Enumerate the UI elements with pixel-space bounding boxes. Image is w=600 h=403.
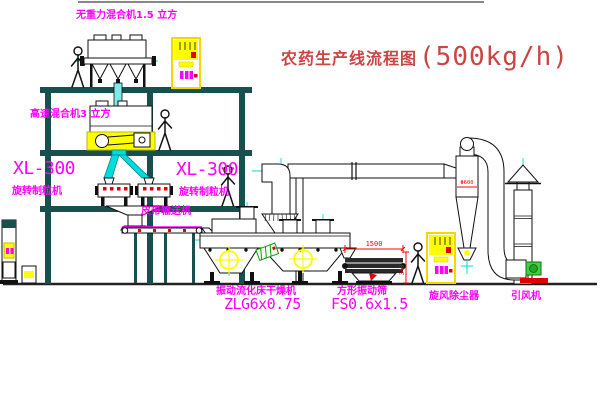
dim-340: 340	[399, 252, 409, 283]
gravity-free-mixer	[80, 35, 156, 108]
control-cabinet-2	[427, 233, 455, 283]
label-screen-model: FS0.6x1.5	[331, 297, 408, 312]
label-belt-conveyor: 皮带输送机	[141, 207, 191, 217]
dim-600-text: Φ600	[460, 180, 473, 186]
label-granulator-right-model: XL-300	[176, 161, 238, 179]
label-gravity-mixer: 无重力混合机1.5 立方	[76, 11, 177, 21]
dim-340-text: 340	[399, 264, 406, 275]
dim-1500-text: 1500	[366, 240, 383, 248]
label-granulator-right-name: 旋转制粒机	[179, 188, 229, 198]
title-capacity: (500kg/h)	[419, 42, 569, 72]
person-figure-2	[159, 110, 172, 150]
label-dryer-model: ZLG6x0.75	[224, 297, 301, 312]
title-chinese: 农药生产线流程图	[281, 45, 417, 69]
granulator-right-machine	[135, 178, 173, 206]
granulator-left-machine	[95, 178, 133, 206]
flow-diagram-canvas: 1500 340 Φ600	[0, 0, 600, 403]
control-cabinet-1	[172, 38, 200, 88]
label-high-speed-mixer: 高速混合机3 立方	[30, 110, 110, 120]
left-edge-elevator	[0, 220, 36, 284]
label-fan: 引风机	[511, 292, 541, 302]
vibrating-screen	[342, 258, 406, 284]
person-figure-4	[412, 243, 425, 283]
label-granulator-left-name: 旋转制粒机	[12, 187, 62, 197]
main-exhaust-duct	[262, 162, 444, 214]
diagram-title: 农药生产线流程图 (500kg/h)	[281, 42, 569, 72]
label-granulator-left-model: XL-300	[13, 160, 75, 178]
label-cyclone: 旋风除尘器	[429, 292, 479, 302]
person-figure-1	[72, 47, 85, 87]
